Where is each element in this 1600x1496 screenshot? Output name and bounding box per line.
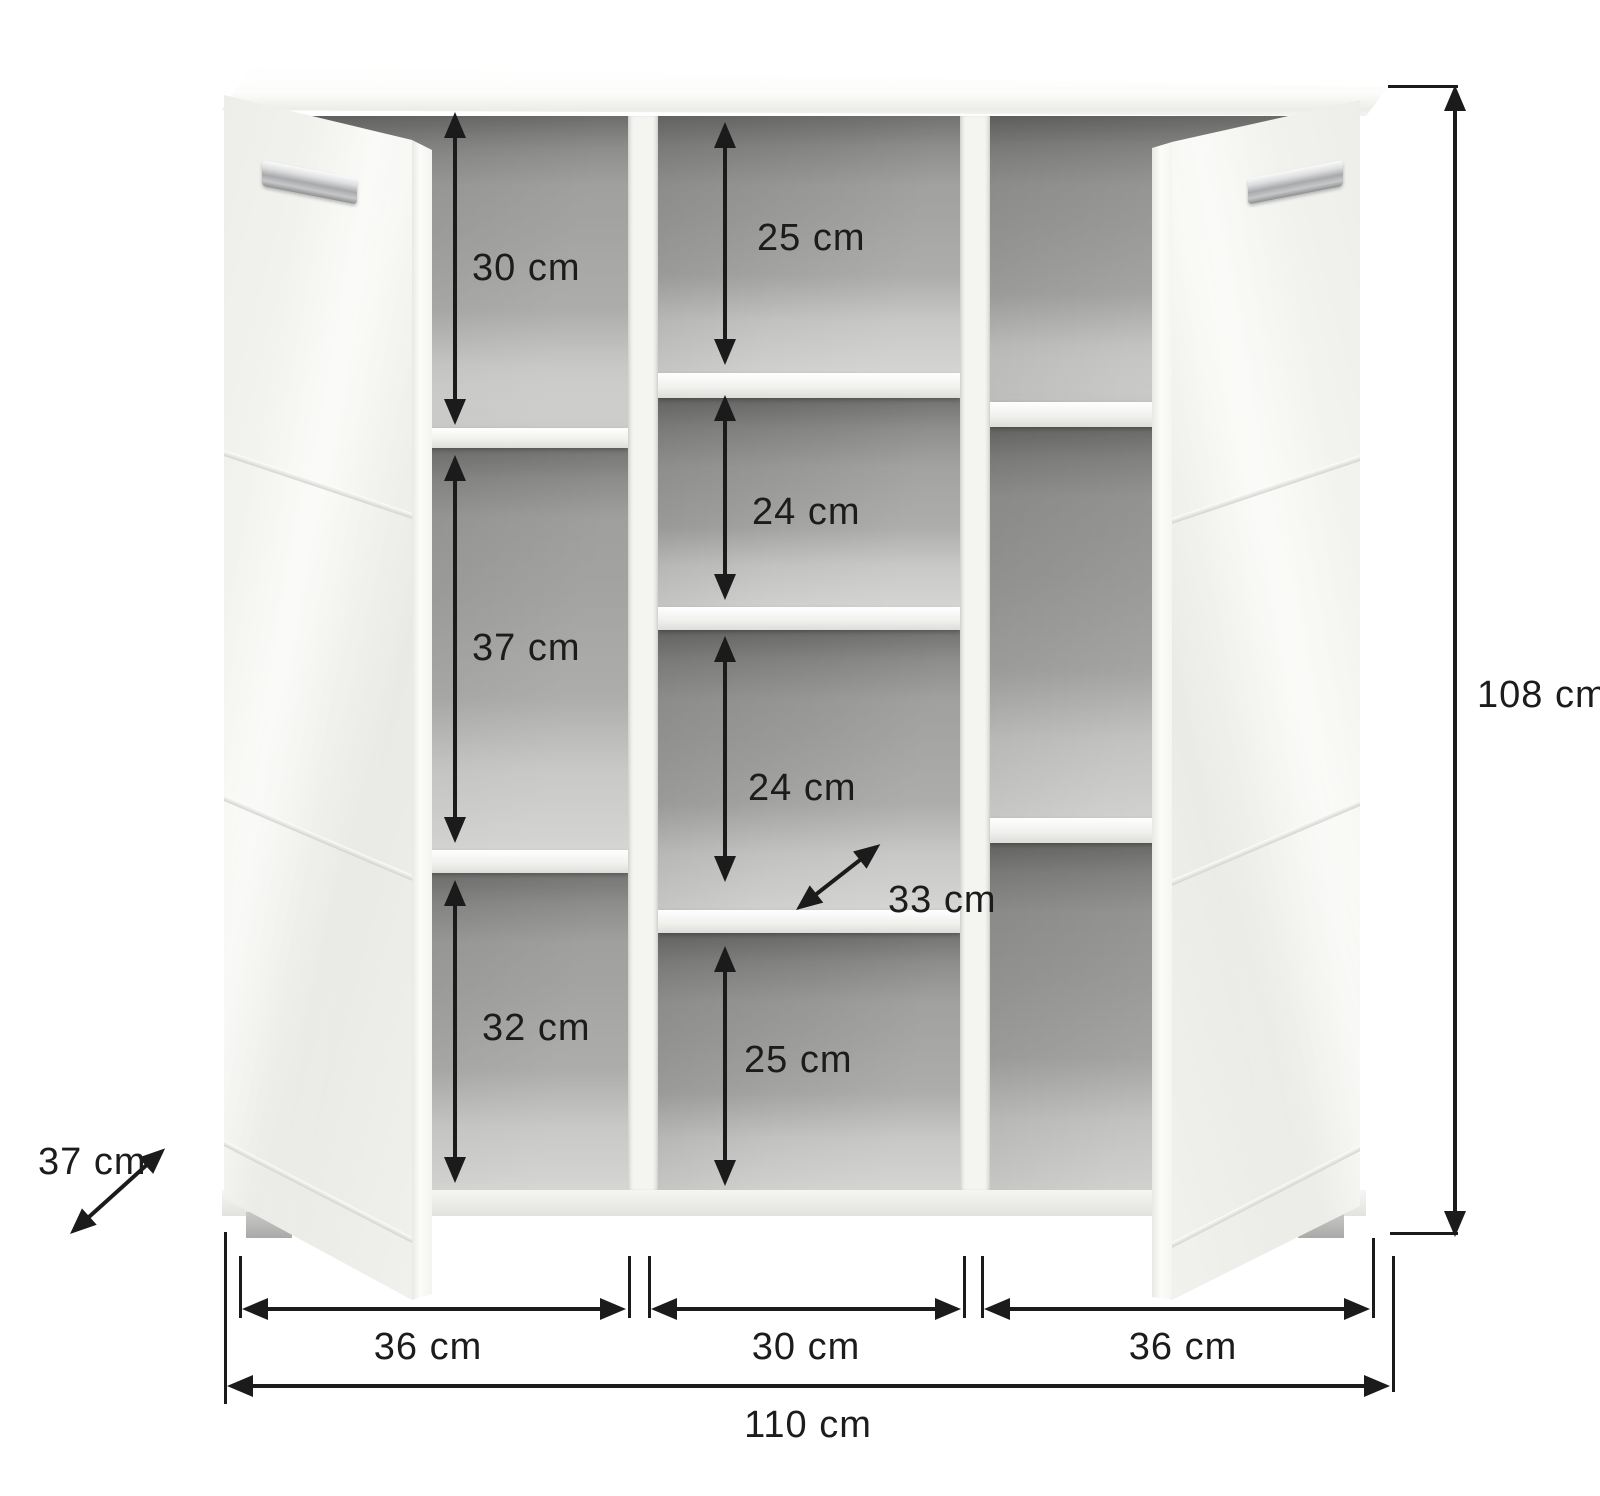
shelf: [658, 373, 960, 398]
right-door: [1150, 96, 1362, 1306]
dim-arrow-mid-1: [714, 122, 736, 365]
dim-label-shelf-depth: 33 cm: [888, 881, 996, 919]
dim-label-width-middle: 30 cm: [752, 1328, 860, 1366]
extension-line: [963, 1256, 966, 1318]
dim-label-mid-3: 24 cm: [748, 769, 856, 807]
dim-arrow-mid-2: [714, 395, 736, 600]
dim-arrow-mid-3: [714, 636, 736, 882]
dim-arrow-height: [1444, 85, 1466, 1237]
dim-label-height: 108 cm: [1477, 676, 1600, 714]
dim-label-width-left: 36 cm: [374, 1328, 482, 1366]
dim-arrow-mid-4: [714, 946, 736, 1186]
dim-label-total-width: 110 cm: [744, 1406, 872, 1444]
dim-label-left-middle: 37 cm: [472, 629, 580, 667]
dim-label-cabinet-depth: 37 cm: [38, 1143, 146, 1181]
left-door-edge: [410, 138, 432, 1302]
extension-line: [628, 1256, 631, 1318]
vertical-partition: [628, 116, 658, 1190]
dim-label-left-top: 30 cm: [472, 249, 580, 287]
dim-label-width-right: 36 cm: [1129, 1328, 1237, 1366]
dim-label-mid-4: 25 cm: [744, 1041, 852, 1079]
dim-line-total-width: [227, 1375, 1390, 1397]
left-door-front: [222, 93, 434, 1305]
left-door: [222, 93, 434, 1305]
dim-line-width-middle: [651, 1298, 961, 1320]
dim-label-mid-2: 24 cm: [752, 493, 860, 531]
dim-arrow-left-middle: [444, 455, 466, 843]
right-door-edge: [1150, 140, 1174, 1304]
extension-line: [1392, 1256, 1395, 1392]
vertical-partition: [960, 116, 990, 1190]
extension-line: [1372, 1238, 1375, 1318]
dim-line-width-right: [984, 1298, 1370, 1320]
dim-arrow-left-bottom: [444, 880, 466, 1183]
shelf: [658, 607, 960, 630]
dim-arrow-left-top: [444, 112, 466, 425]
dim-label-left-bottom: 32 cm: [482, 1009, 590, 1047]
product-dimension-diagram: 30 cm 37 cm 32 cm 25 cm 24 cm 24 cm 25 c…: [0, 0, 1600, 1496]
dim-line-width-left: [242, 1298, 626, 1320]
right-door-front: [1150, 96, 1362, 1306]
dim-label-mid-1: 25 cm: [757, 219, 865, 257]
